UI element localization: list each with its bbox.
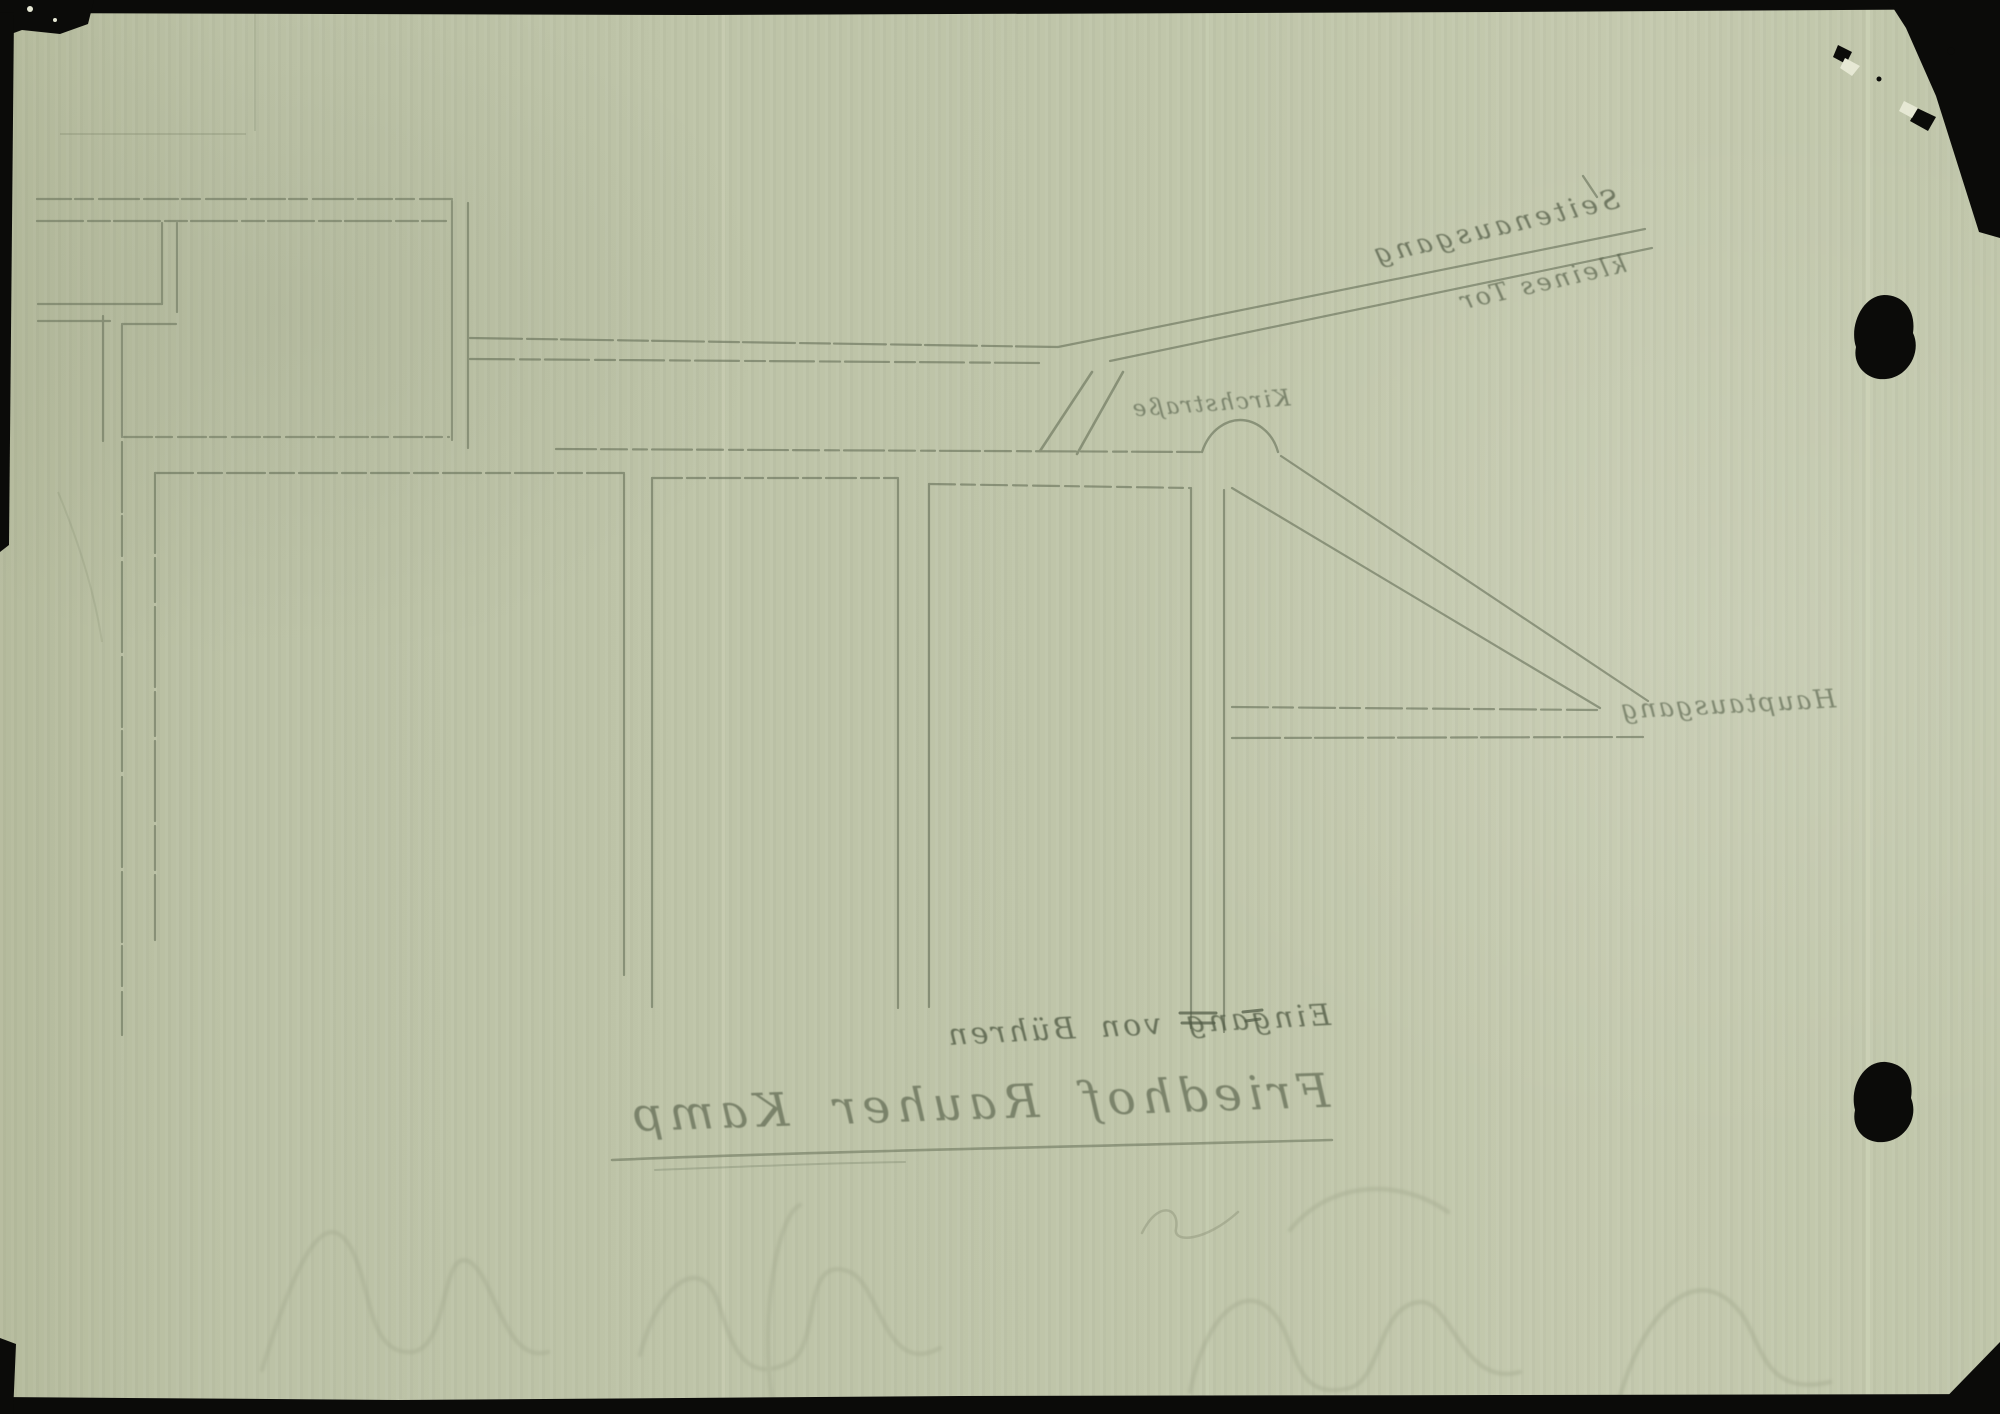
bleedthrough-script — [262, 1189, 1830, 1400]
left-edge-strip — [0, 12, 14, 552]
punch-hole-bottom — [1854, 1062, 1914, 1142]
title-underline — [612, 1140, 1332, 1170]
map-roads — [122, 176, 1652, 1035]
speck — [1948, 48, 1955, 55]
top-edge-strip — [0, 0, 2000, 15]
top-left-corner-mark — [0, 0, 94, 38]
map-block-outline — [37, 199, 468, 448]
scanned-document-page: Seitenausgang kleines Tor Kirchstraße Ha… — [0, 0, 2000, 1414]
white-specks — [27, 6, 1918, 118]
faint-ghost-lines — [58, 14, 255, 642]
bottom-edge-strip — [0, 1394, 2000, 1414]
speck — [1877, 77, 1882, 82]
faint-scribble — [1142, 1210, 1238, 1237]
punch-hole-top — [1854, 295, 1916, 379]
top-right-corner-wedge — [1888, 0, 2000, 238]
